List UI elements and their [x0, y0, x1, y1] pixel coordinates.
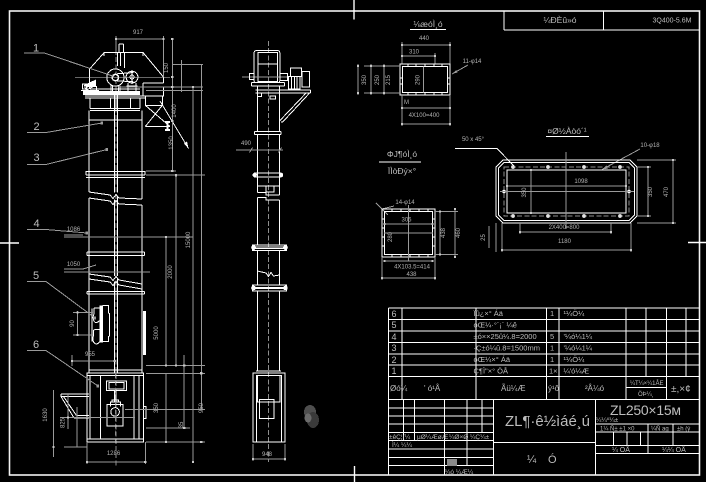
svg-text:'¼ó¼1¼: '¼ó¼1¼	[564, 344, 593, 353]
svg-text:215: 215	[386, 74, 392, 85]
svg-text:1630: 1630	[43, 408, 49, 422]
svg-text:2X400=800: 2X400=800	[549, 225, 581, 231]
svg-text:350: 350	[362, 74, 368, 85]
svg-text:1¼ Ñ± ±1 ×0: 1¼ Ñ± ±1 ×0	[600, 426, 635, 433]
svg-text:óŒ¼×° Áä: óŒ¼×° Áä	[474, 355, 511, 364]
svg-text:ZL250×15м: ZL250×15м	[610, 402, 681, 418]
svg-text:310: 310	[409, 50, 420, 56]
svg-text:5: 5	[550, 332, 554, 341]
svg-text:ý¹ô: ý¹ô	[548, 384, 560, 393]
svg-text:ÖÞ¼¸: ÖÞ¼¸	[638, 391, 654, 398]
svg-text:3: 3	[33, 152, 39, 164]
svg-text:955: 955	[85, 352, 96, 358]
svg-text:438: 438	[406, 272, 417, 278]
svg-text:5: 5	[33, 270, 39, 282]
svg-text:917: 917	[133, 30, 144, 36]
svg-text:' ó¹Å: ' ó¹Å	[424, 384, 441, 393]
svg-text:¼T¼×¼1ÅE: ¼T¼×¼1ÅE	[630, 380, 664, 387]
svg-text:¼ ÖÅ: ¼ ÖÅ	[612, 445, 630, 454]
svg-text:1286: 1286	[107, 451, 121, 457]
svg-text:440: 440	[419, 36, 430, 42]
svg-text:±êÇ¦(¼: ±êÇ¦(¼	[389, 434, 411, 441]
svg-text:280: 280	[388, 231, 394, 242]
svg-text:15000: 15000	[186, 231, 192, 248]
svg-text:±ó××25û¼.8=2000: ±ó××25û¼.8=2000	[474, 332, 537, 341]
svg-text:Ó: Ó	[548, 453, 557, 466]
svg-text:±,×¢: ±,×¢	[671, 384, 691, 395]
svg-text:4: 4	[391, 332, 396, 342]
svg-text:350: 350	[154, 402, 160, 413]
svg-text:50 x 45°: 50 x 45°	[462, 137, 485, 143]
svg-text:250: 250	[375, 74, 381, 85]
svg-text:5: 5	[391, 320, 396, 330]
svg-text:350: 350	[522, 187, 528, 198]
svg-text:ÏÌòÐý×°: ÏÌòÐý×°	[388, 166, 416, 176]
svg-text:¼Ç¼±: ¼Ç¼±	[470, 434, 490, 441]
svg-text:3: 3	[391, 343, 396, 353]
svg-text:14-φ14: 14-φ14	[395, 200, 415, 206]
svg-text:¼: ¼	[527, 454, 537, 466]
svg-text:ZL¶·ê½ìáé¸ú: ZL¶·ê½ìáé¸ú	[505, 413, 590, 430]
svg-text:290: 290	[416, 74, 422, 85]
svg-text:2: 2	[391, 355, 396, 365]
svg-text:1: 1	[391, 366, 396, 376]
svg-text:⅛æóÌ¸ó: ⅛æóÌ¸ó	[413, 19, 443, 29]
svg-text:·Ç±ó¼û.8=1500mm: ·Ç±ó¼û.8=1500mm	[474, 344, 540, 353]
svg-text:±h (ý: ±h (ý	[677, 427, 690, 433]
svg-text:µØ¼ÆøÆ: µØ¼ÆøÆ	[417, 434, 449, 441]
svg-text:Øó¼: Øó¼	[390, 384, 408, 393]
svg-text:2000: 2000	[168, 265, 174, 279]
svg-text:¹¼Ö¼: ¹¼Ö¼	[564, 355, 586, 364]
svg-text:948: 948	[262, 452, 273, 458]
svg-text:¼'ó¼Æ: ¼'ó¼Æ	[564, 367, 590, 376]
svg-text:11-φ14: 11-φ14	[463, 59, 482, 65]
svg-text:1098: 1098	[574, 179, 588, 185]
svg-text:²Å¼ó: ²Å¼ó	[585, 384, 605, 393]
svg-text:150: 150	[164, 62, 170, 73]
svg-text:3Q400-5.6M: 3Q400-5.6M	[653, 18, 692, 25]
svg-text:1: 1	[550, 355, 554, 364]
svg-text:6: 6	[391, 309, 396, 319]
svg-text:350: 350	[648, 186, 654, 197]
svg-text:1: 1	[550, 309, 554, 318]
svg-text:¹¼Ö¼: ¹¼Ö¼	[564, 309, 586, 318]
svg-text:4: 4	[33, 218, 39, 230]
svg-text:¼¼ ÖÅ: ¼¼ ÖÅ	[662, 445, 686, 454]
svg-text:¼ÐÈû»ó: ¼ÐÈû»ó	[543, 15, 576, 25]
svg-text:Ì¼ ¼¼: Ì¼ ¼¼	[392, 440, 412, 449]
svg-text:460: 460	[456, 227, 462, 238]
svg-text:5000: 5000	[154, 326, 160, 340]
svg-text:Ç¶Ì"×° ÖÅ: Ç¶Ì"×° ÖÅ	[474, 367, 509, 376]
svg-text:6: 6	[33, 339, 39, 351]
svg-text:2: 2	[33, 121, 39, 133]
svg-text:¼¼º¼±: ¼¼º¼±	[596, 417, 619, 424]
svg-text:4X100=400: 4X100=400	[409, 113, 441, 119]
svg-text:1: 1	[550, 344, 554, 353]
svg-text:490: 490	[241, 141, 252, 147]
svg-text:1400: 1400	[172, 104, 178, 118]
svg-text:Ïû¿×° Áä: Ïû¿×° Áä	[474, 309, 504, 318]
svg-text:470: 470	[664, 186, 670, 197]
svg-text:90: 90	[70, 320, 76, 327]
svg-text:10-φ18: 10-φ18	[640, 143, 660, 149]
svg-text:Ãü¼Æ: Ãü¼Æ	[501, 384, 525, 393]
svg-text:M: M	[404, 100, 409, 106]
svg-text:1180: 1180	[558, 239, 572, 245]
svg-text:825: 825	[61, 417, 67, 428]
svg-text:305: 305	[401, 218, 412, 224]
svg-text:438: 438	[441, 227, 447, 238]
svg-text:1350: 1350	[169, 136, 175, 150]
svg-text:ΦJ¶óÌ¸ó: ΦJ¶óÌ¸ó	[387, 149, 418, 159]
svg-text:¤Ø½Àòó´¹: ¤Ø½Àòó´¹	[547, 126, 586, 136]
svg-text:¼ó ¼Æ¼: ¼ó ¼Æ¼	[445, 469, 474, 476]
svg-text:óŒ¼·°´¡´ ¼ê: óŒ¼·°´¡´ ¼ê	[474, 321, 517, 330]
svg-text:'¼ó¼1¼: '¼ó¼1¼	[564, 332, 593, 341]
svg-text:¼Ø×Ø: ¼Ø×Ø	[449, 434, 468, 441]
svg-text:25: 25	[481, 234, 487, 241]
svg-text:¼Ñ ag: ¼Ñ ag	[651, 426, 669, 433]
svg-text:950: 950	[199, 402, 205, 413]
svg-text:4X103.5=414: 4X103.5=414	[394, 265, 431, 271]
svg-text:1050: 1050	[67, 262, 81, 268]
svg-text:1×: 1×	[549, 367, 558, 376]
